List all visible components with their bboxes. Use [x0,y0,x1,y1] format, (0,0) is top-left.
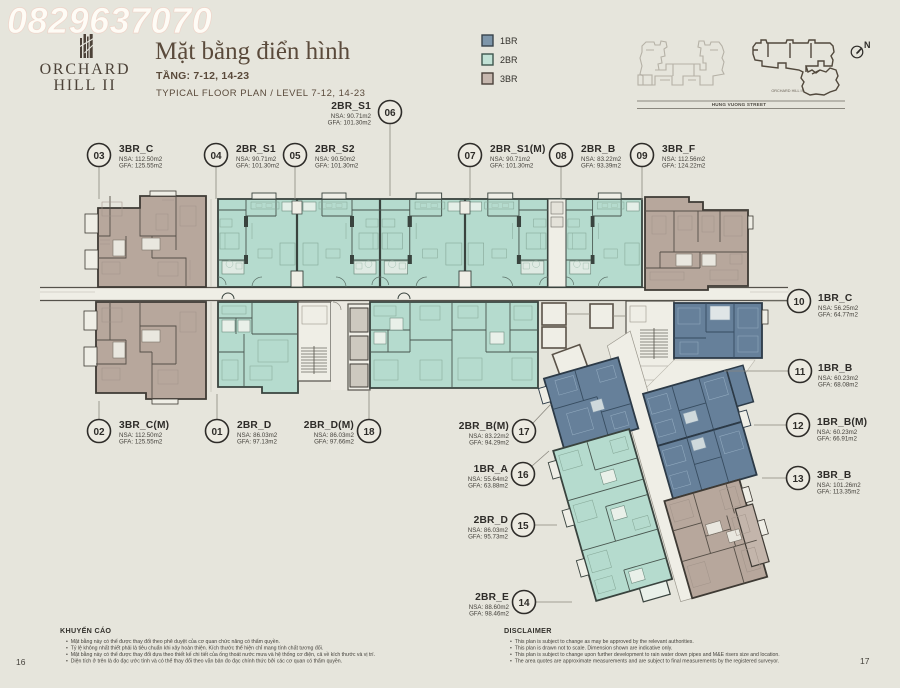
svg-text:• This plan is subject to cha: • This plan is subject to change upon fu… [510,652,780,658]
svg-text:17: 17 [518,427,530,438]
svg-text:TẦNG: 7-12, 14-23: TẦNG: 7-12, 14-23 [156,69,249,82]
svg-text:1BR_C: 1BR_C [818,293,853,304]
svg-text:2BR_S2: 2BR_S2 [315,144,355,155]
svg-text:GFA: 68.08m2: GFA: 68.08m2 [818,382,858,389]
svg-text:• Mặt bằng này có thể được th: • Mặt bằng này có thể được thay đổi dựa … [66,651,375,658]
svg-text:HUNG VUONG STREET: HUNG VUONG STREET [712,102,766,107]
svg-text:0829637070: 0829637070 [7,0,212,41]
svg-text:GFA: 97.13m2: GFA: 97.13m2 [237,439,277,446]
svg-text:N: N [864,40,871,50]
svg-text:HILL II: HILL II [53,77,116,94]
svg-text:GFA: 101.30m2: GFA: 101.30m2 [490,163,534,170]
svg-text:16: 16 [517,470,529,481]
svg-text:• The area quotes are approxi: • The area quotes are approximate measur… [510,659,779,665]
svg-text:08: 08 [555,151,567,162]
svg-text:2BR_S1: 2BR_S1 [331,101,371,112]
svg-text:GFA: 93.39m2: GFA: 93.39m2 [581,163,621,170]
svg-text:GFA: 98.46m2: GFA: 98.46m2 [469,611,509,618]
svg-text:• Tỷ lệ không nhất thiết phải: • Tỷ lệ không nhất thiết phải là tiêu ch… [66,645,323,652]
svg-text:2BR_B(M): 2BR_B(M) [459,421,509,432]
svg-text:GFA: 63.88m2: GFA: 63.88m2 [468,483,508,490]
svg-text:13: 13 [792,474,804,485]
svg-text:3BR_B: 3BR_B [817,470,851,481]
svg-text:1BR_B: 1BR_B [818,363,852,374]
svg-text:DISCLAIMER: DISCLAIMER [504,626,552,635]
svg-text:1BR_B(M): 1BR_B(M) [817,417,867,428]
svg-text:• This plan is subject to cha: • This plan is subject to change as may … [510,639,694,645]
svg-text:05: 05 [289,151,301,162]
svg-text:17: 17 [860,656,870,666]
svg-text:GFA: 124.22m2: GFA: 124.22m2 [662,163,706,170]
svg-text:2BR_D(M): 2BR_D(M) [304,420,354,431]
svg-text:1BR_A: 1BR_A [474,464,509,475]
svg-text:04: 04 [210,151,222,162]
svg-text:GFA: 94.29m2: GFA: 94.29m2 [469,440,509,447]
svg-text:02: 02 [93,427,105,438]
svg-text:ORCHARD: ORCHARD [40,61,131,78]
svg-text:03: 03 [93,151,105,162]
svg-text:TYPICAL FLOOR PLAN / LEVEL 7-1: TYPICAL FLOOR PLAN / LEVEL 7-12, 14-23 [156,88,365,99]
svg-text:07: 07 [464,151,476,162]
svg-text:2BR_S1(M): 2BR_S1(M) [490,144,546,155]
svg-text:GFA: 101.30m2: GFA: 101.30m2 [236,163,280,170]
svg-text:2BR_D: 2BR_D [474,515,508,526]
svg-text:GFA: 95.73m2: GFA: 95.73m2 [468,534,508,541]
svg-text:15: 15 [517,521,529,532]
svg-text:2BR_B: 2BR_B [581,144,615,155]
svg-text:3BR_F: 3BR_F [662,144,695,155]
svg-text:14: 14 [518,598,530,609]
svg-text:GFA: 64.77m2: GFA: 64.77m2 [818,312,858,319]
svg-text:Mặt bằng điển hình: Mặt bằng điển hình [155,38,351,65]
svg-text:GFA: 66.91m2: GFA: 66.91m2 [817,436,857,443]
svg-text:06: 06 [384,108,396,119]
svg-text:• Mặt bằng này có thể được th: • Mặt bằng này có thể được thay đổi theo… [66,638,280,645]
svg-text:3BR_C: 3BR_C [119,144,154,155]
svg-text:2BR_E: 2BR_E [475,592,509,603]
svg-text:GFA: 113.35m2: GFA: 113.35m2 [817,489,860,496]
svg-text:11: 11 [795,367,806,378]
svg-text:• Diện tích ở trên là đo đạc: • Diện tích ở trên là đo đạc ước tính và… [66,658,342,665]
svg-text:16: 16 [16,657,26,667]
svg-text:GFA: 101.30m2: GFA: 101.30m2 [315,163,359,170]
svg-text:3BR: 3BR [500,74,518,84]
svg-text:GFA: 125.55m2: GFA: 125.55m2 [119,163,163,170]
svg-text:1BR: 1BR [500,36,518,46]
svg-text:GFA: 101.30m2: GFA: 101.30m2 [328,120,372,127]
svg-text:09: 09 [636,151,648,162]
svg-text:3BR_C(M): 3BR_C(M) [119,420,169,431]
svg-text:12: 12 [792,421,804,432]
svg-text:ORCHARD HILL II: ORCHARD HILL II [771,89,802,93]
svg-text:KHUYẾN CÁO: KHUYẾN CÁO [60,625,111,635]
svg-text:• This plan is drawn not to s: • This plan is drawn not to scale. Dimen… [510,646,672,652]
svg-text:18: 18 [363,427,375,438]
svg-text:2BR: 2BR [500,55,518,65]
svg-text:10: 10 [793,297,805,308]
svg-text:GFA: 97.66m2: GFA: 97.66m2 [314,439,354,446]
svg-text:01: 01 [211,427,223,438]
svg-text:2BR_D: 2BR_D [237,420,271,431]
svg-text:2BR_S1: 2BR_S1 [236,144,276,155]
svg-text:GFA: 125.55m2: GFA: 125.55m2 [119,439,163,446]
